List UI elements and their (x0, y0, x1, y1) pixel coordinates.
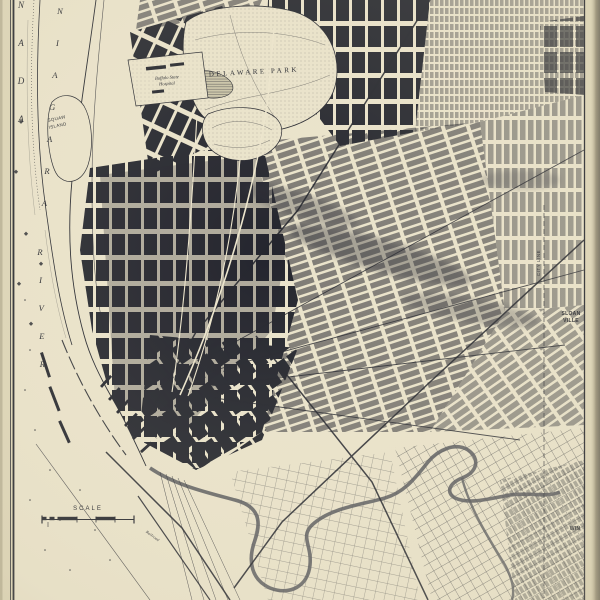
letter-niagara-4: A (46, 134, 53, 144)
map-image: SCALEDELAWARE PARKBuffalo StateHospitalS… (0, 0, 600, 600)
label-sloan-2: VILLE (563, 318, 579, 324)
letter-canada-3: A (17, 38, 24, 48)
label-winchester: WIN (570, 526, 581, 532)
letter-niagara-5: R (43, 166, 50, 176)
page-edge-right (591, 0, 600, 600)
vintage-city-map-photo: SCALEDELAWARE PARKBuffalo StateHospitalS… (0, 0, 600, 600)
letter-niagara-3: G (49, 102, 55, 112)
letter-river-4: R (39, 359, 46, 369)
label-city-line: CITY LINE (536, 250, 541, 276)
letter-canada-5: A (17, 114, 24, 124)
grid-northeast-dark-patch (540, 16, 584, 95)
letter-river-3: E (38, 331, 45, 341)
label-scale-title: SCALE (73, 506, 103, 512)
page-edge-left (0, 0, 3, 600)
letter-niagara-2: A (51, 70, 58, 80)
letter-niagara-6: A (41, 198, 48, 208)
letter-canada-2: N (17, 0, 25, 10)
letter-river-0: R (36, 247, 43, 257)
letter-canada-4: D (17, 76, 25, 86)
label-sloan-1: SLOAN (562, 311, 581, 317)
